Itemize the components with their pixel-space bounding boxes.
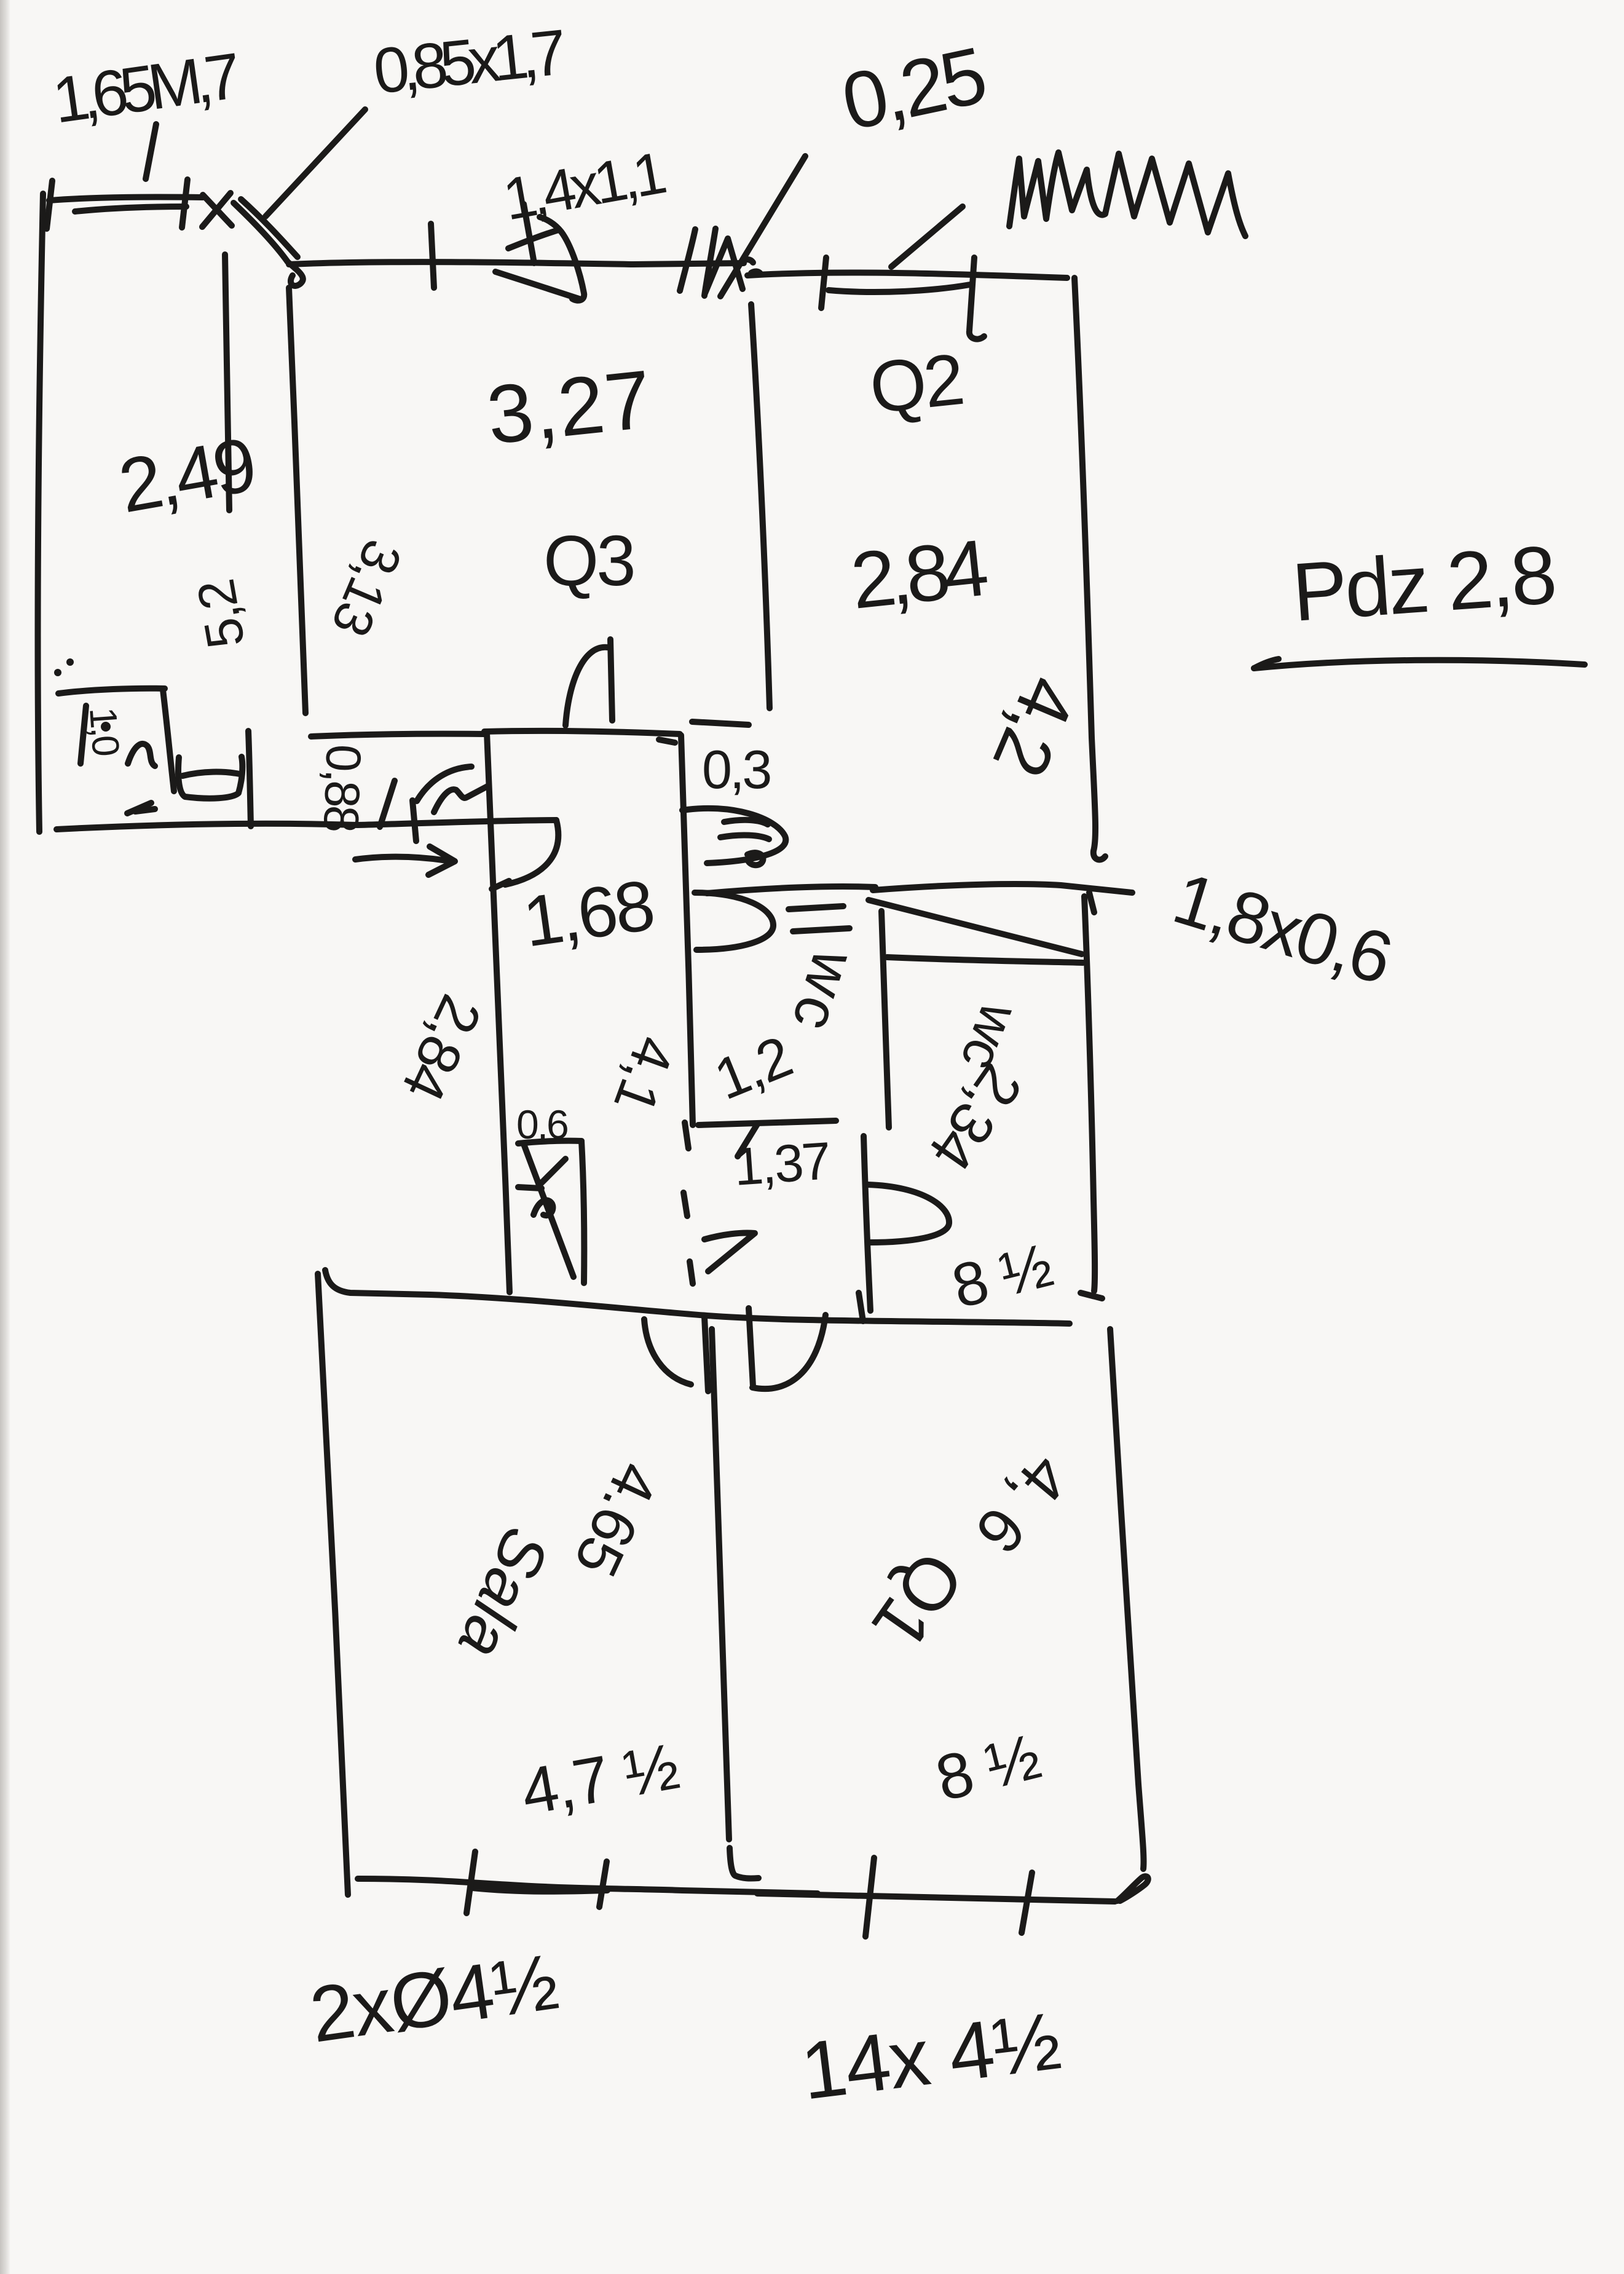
svg-text:14x 4½: 14x 4½ xyxy=(796,1996,1064,2117)
svg-text:2xØ4½: 2xØ4½ xyxy=(305,1938,562,2059)
svg-text:Pdz 2,8: Pdz 2,8 xyxy=(1290,529,1558,639)
svg-text:8 ½: 8 ½ xyxy=(945,1231,1058,1322)
svg-text:1,68: 1,68 xyxy=(518,865,657,962)
svg-text:Q1: Q1 xyxy=(857,1537,979,1663)
svg-text:4,1: 4,1 xyxy=(602,1028,687,1120)
svg-text:wc: wc xyxy=(778,942,869,1042)
svg-text:2,84: 2,84 xyxy=(847,523,991,626)
svg-text:5,2: 5,2 xyxy=(186,577,256,653)
svg-text:1,65M,7: 1,65M,7 xyxy=(49,40,243,137)
svg-text:0,6: 0,6 xyxy=(516,1102,567,1147)
svg-text:1,8x0,6: 1,8x0,6 xyxy=(1164,858,1399,1000)
svg-text:3,27: 3,27 xyxy=(483,353,656,462)
svg-text:2,49: 2,49 xyxy=(113,422,260,529)
svg-text:0,85x1,7: 0,85x1,7 xyxy=(370,17,567,108)
svg-text:2,84: 2,84 xyxy=(390,985,494,1110)
svg-text:3,13: 3,13 xyxy=(320,532,414,644)
svg-text:1,4x1,1: 1,4x1,1 xyxy=(499,140,669,233)
svg-text:Sala: Sala xyxy=(444,1518,564,1669)
svg-text:2,34: 2,34 xyxy=(917,1052,1036,1182)
svg-text:8 ½: 8 ½ xyxy=(929,1721,1047,1815)
svg-text:Q2: Q2 xyxy=(866,339,966,429)
svg-text:4.65: 4.65 xyxy=(561,1453,672,1585)
svg-text:0,88: 0,88 xyxy=(313,743,371,832)
svg-text:1,2: 1,2 xyxy=(706,1024,799,1112)
svg-text:1,0: 1,0 xyxy=(81,706,127,757)
svg-text:4,2: 4,2 xyxy=(978,665,1093,785)
svg-text:4,7 ½: 4,7 ½ xyxy=(516,1730,684,1829)
svg-text:1,37: 1,37 xyxy=(732,1131,832,1197)
svg-text:Q3: Q3 xyxy=(543,521,634,601)
svg-text:0,25: 0,25 xyxy=(834,30,991,148)
svg-text:4, 6: 4, 6 xyxy=(963,1442,1082,1565)
svg-text:0,3: 0,3 xyxy=(702,739,770,800)
